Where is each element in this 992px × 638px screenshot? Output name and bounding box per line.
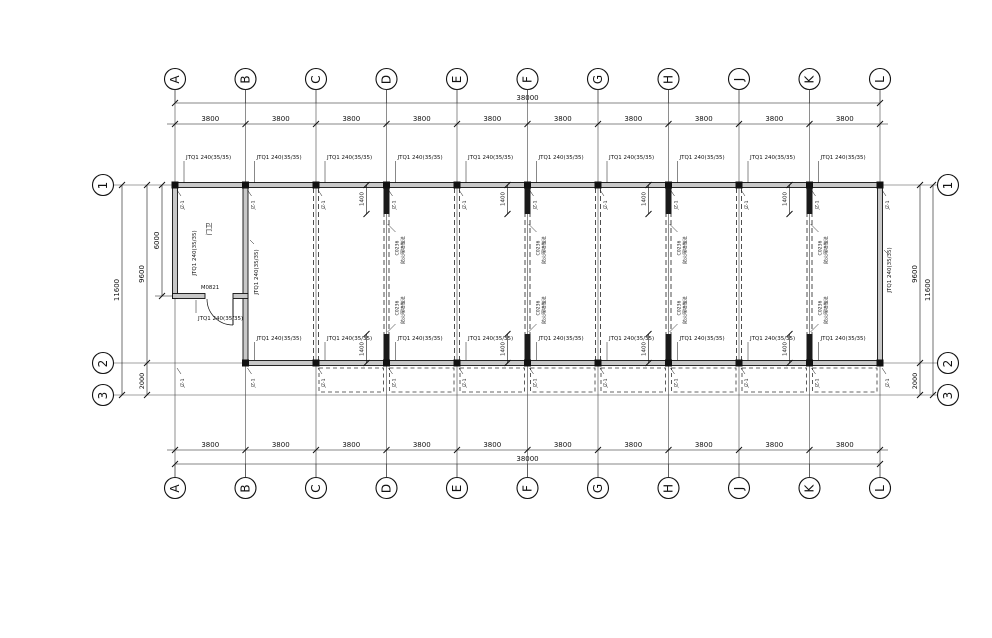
- wall-type-label-bottom: JTQ1 240(35/35): [397, 336, 443, 342]
- column-tag: JZ-1: [674, 200, 680, 210]
- column-tag: JZ-1: [744, 378, 750, 388]
- dim-stub-top: 1400: [360, 192, 366, 206]
- dim-bay-top: 3800: [695, 115, 713, 123]
- canopy-bay: [601, 368, 666, 392]
- column-marker: [383, 182, 390, 189]
- grid-bubble-bottom-label: K: [803, 483, 817, 492]
- stub-wall-bottom: [525, 334, 531, 360]
- wall-type-label-top: JTQ1 240(35/35): [256, 155, 302, 161]
- floor-plan: 3800038003800380038003800380038003800380…: [0, 0, 992, 638]
- grid-bubble-left-label: 1: [96, 182, 110, 190]
- dim-right-9600: 9600: [911, 265, 919, 283]
- wall-room-bottom-left: [173, 294, 206, 299]
- grid-bubble-left-label: 3: [96, 392, 110, 400]
- partition-note: 防火隔墙做法: [823, 296, 830, 324]
- wall-left-room: [173, 183, 178, 299]
- dim-bay-top: 3800: [201, 115, 219, 123]
- column-tag: JZ-1: [180, 378, 186, 388]
- column-tag: JZ-1: [251, 378, 257, 388]
- stub-wall-top: [666, 188, 672, 214]
- column-tag: JZ-1: [815, 378, 821, 388]
- dim-bay-bottom: 3800: [413, 441, 431, 449]
- column-marker: [242, 360, 249, 367]
- dim-stub-bottom: 1400: [642, 342, 648, 356]
- grid-bubble-bottom-label: D: [380, 484, 394, 493]
- grid-bubble-top-label: G: [591, 75, 605, 84]
- dim-stub-top: 1400: [642, 192, 648, 206]
- canopy-bay: [742, 368, 807, 392]
- dim-bay-bottom: 3800: [342, 441, 360, 449]
- canopy-bay: [531, 368, 596, 392]
- dim-left-2000: 2000: [138, 373, 146, 390]
- wall-type-label-top: JTQ1 240(35/35): [749, 155, 795, 161]
- dim-bay-top: 3800: [624, 115, 642, 123]
- dim-bay-top: 3800: [554, 115, 572, 123]
- wall-type-label-bottom: JTQ1 240(35/35): [256, 336, 302, 342]
- stub-wall-top: [384, 188, 390, 214]
- partition-note: C0236: [677, 300, 683, 315]
- room: 门卫: [204, 222, 213, 236]
- column-tag: JZ-1: [533, 200, 539, 210]
- partition-note: C0236: [677, 240, 683, 255]
- partition-note: C0236: [536, 240, 542, 255]
- grid-bubble-top-label: D: [380, 75, 394, 84]
- wall-type-label-top: JTQ1 240(35/35): [679, 155, 725, 161]
- partition-note: 防火隔墙做法: [541, 296, 548, 324]
- grid-bubble-top-label: F: [521, 76, 535, 83]
- column-marker: [313, 182, 320, 189]
- column-tag: JZ-1: [321, 200, 327, 210]
- column-tag: JZ-1: [180, 200, 186, 210]
- dim-stub-bottom: 1400: [783, 342, 789, 356]
- wall-type-label-top: JTQ1 240(35/35): [538, 155, 584, 161]
- column-tag: JZ-1: [603, 200, 609, 210]
- stub-wall-bottom: [807, 334, 813, 360]
- partition-note: C0236: [818, 300, 824, 315]
- grid-bubble-bottom-label: H: [662, 484, 676, 493]
- grid-bubble-top-label: L: [873, 76, 887, 83]
- column-marker: [454, 360, 461, 367]
- column-marker: [736, 360, 743, 367]
- partition-note: C0236: [395, 300, 401, 315]
- room-label: 门卫: [204, 222, 213, 236]
- grid-lines: [114, 90, 938, 477]
- grid-bubble-bottom-label: J: [732, 487, 746, 492]
- column-tag: JZ-1: [885, 378, 891, 388]
- dim-bay-top: 3800: [765, 115, 783, 123]
- floor-plan-canvas: 3800038003800380038003800380038003800380…: [0, 0, 992, 638]
- grid-bubble-right-label: 1: [941, 182, 955, 190]
- grid-bubble-top-label: K: [803, 74, 817, 83]
- wall-bottom: [243, 361, 883, 366]
- wall-type-label-bottom: JTQ1 240(35/35): [467, 336, 513, 342]
- column-tag: JZ-1: [251, 200, 257, 210]
- partition-note: 防火隔墙做法: [400, 236, 407, 264]
- wall-room-bottom-right: [233, 294, 248, 299]
- grid-bubble-bottom-label: C: [309, 484, 323, 492]
- wall-type-label-bottom: JTQ1 240(35/35): [749, 336, 795, 342]
- wall-type-label-B: JTQ1 240(35/35): [254, 249, 260, 295]
- column-marker: [524, 182, 531, 189]
- column-marker: [454, 182, 461, 189]
- column-tag: JZ-1: [392, 200, 398, 210]
- wall-right: [878, 183, 883, 366]
- wall-type-label-top: JTQ1 240(35/35): [820, 155, 866, 161]
- column-marker: [736, 182, 743, 189]
- column-tag: JZ-1: [744, 200, 750, 210]
- column-marker: [665, 360, 672, 367]
- grid-bubble-top-label: E: [450, 76, 464, 84]
- canopy-bay: [813, 368, 878, 392]
- partition-note: 防火隔墙做法: [400, 296, 407, 324]
- grid-bubble-left-label: 2: [96, 360, 110, 368]
- partition-note: C0236: [818, 240, 824, 255]
- wall-type-label-room: JTQ1 240(35/35): [197, 316, 243, 322]
- grid-bubble-top-label: H: [662, 75, 676, 84]
- canopy-bay: [319, 368, 384, 392]
- column-tag: JZ-1: [392, 378, 398, 388]
- grid-bubble-bottom-label: A: [168, 484, 182, 493]
- column-tag: JZ-1: [885, 200, 891, 210]
- column-marker: [595, 182, 602, 189]
- grid-bubble-bottom-label: F: [521, 485, 535, 492]
- partition-note: 防火隔墙做法: [682, 296, 689, 324]
- wall-type-label-bottom: JTQ1 240(35/35): [326, 336, 372, 342]
- grid-bubble-bottom-label: E: [450, 485, 464, 493]
- wall-type-label-top: JTQ1 240(35/35): [397, 155, 443, 161]
- wall-type-label-L: JTQ1 240(35/35): [887, 247, 893, 293]
- dim-bay-bottom: 3800: [201, 441, 219, 449]
- wall-type-label-top: JTQ1 240(35/35): [326, 155, 372, 161]
- column-marker: [877, 182, 884, 189]
- column-tag: JZ-1: [674, 378, 680, 388]
- dim-stub-bottom: 1400: [360, 342, 366, 356]
- partition-note: 防火隔墙做法: [541, 236, 548, 264]
- column-marker: [806, 182, 813, 189]
- dim-total-bottom: 38000: [516, 455, 538, 463]
- grid-bubble-top-label: B: [239, 75, 253, 83]
- stub-wall-bottom: [666, 334, 672, 360]
- dim-bay-bottom: 3800: [272, 441, 290, 449]
- column-marker: [172, 182, 179, 189]
- wall-grid-B: [243, 183, 248, 366]
- dimension-lines: 3800038003800380038003800380038003800380…: [113, 94, 936, 467]
- stub-wall-top: [525, 188, 531, 214]
- dim-bay-bottom: 3800: [483, 441, 501, 449]
- grid-bubble-bottom-label: L: [873, 485, 887, 492]
- dim-right-2000: 2000: [911, 373, 919, 390]
- column-tag: JZ-1: [603, 378, 609, 388]
- canopy-bay: [390, 368, 455, 392]
- dim-left-9600: 9600: [138, 265, 146, 283]
- dim-stub-bottom: 1400: [501, 342, 507, 356]
- wall-type-label-top: JTQ1 240(35/35): [467, 155, 513, 161]
- grid-bubble-bottom-label: B: [239, 484, 253, 492]
- column-marker: [313, 360, 320, 367]
- canopy-bay: [460, 368, 525, 392]
- column-tag: JZ-1: [462, 378, 468, 388]
- stub-wall-top: [807, 188, 813, 214]
- column-marker: [665, 182, 672, 189]
- dim-bay-top: 3800: [836, 115, 854, 123]
- grid-bubble-top-label: J: [732, 78, 746, 83]
- partition-note: 防火隔墙做法: [682, 236, 689, 264]
- door-tag: M0821: [201, 285, 219, 291]
- column-marker: [877, 360, 884, 367]
- partition-note: 防火隔墙做法: [823, 236, 830, 264]
- column-tag: JZ-1: [462, 200, 468, 210]
- partition-note: C0236: [395, 240, 401, 255]
- wall-type-label-bottom: JTQ1 240(35/35): [679, 336, 725, 342]
- wall-type-label-top: JTQ1 240(35/35): [185, 155, 231, 161]
- column-marker: [524, 360, 531, 367]
- grid-bubble-right-label: 3: [941, 392, 955, 400]
- partition-note: C0236: [536, 300, 542, 315]
- dim-stub-top: 1400: [501, 192, 507, 206]
- dim-bay-bottom: 3800: [765, 441, 783, 449]
- canopy-bay: [672, 368, 737, 392]
- wall-type-label-bottom: JTQ1 240(35/35): [538, 336, 584, 342]
- grid-bubble-top-label: C: [309, 75, 323, 83]
- wall-type-label-bottom: JTQ1 240(35/35): [608, 336, 654, 342]
- dim-bay-bottom: 3800: [836, 441, 854, 449]
- column-marker: [806, 360, 813, 367]
- dim-right-overall: 11600: [924, 279, 932, 301]
- stub-wall-bottom: [384, 334, 390, 360]
- wall-type-label-top: JTQ1 240(35/35): [608, 155, 654, 161]
- dim-room-depth: 6000: [153, 232, 161, 250]
- column-marker: [242, 182, 249, 189]
- wall-type-label-A: JTQ1 240(35/35): [192, 230, 198, 276]
- column-tag: JZ-1: [321, 378, 327, 388]
- dim-bay-top: 3800: [342, 115, 360, 123]
- dim-bay-bottom: 3800: [554, 441, 572, 449]
- dim-stub-top: 1400: [783, 192, 789, 206]
- column-tag: JZ-1: [533, 378, 539, 388]
- column-marker: [595, 360, 602, 367]
- dim-bay-bottom: 3800: [695, 441, 713, 449]
- dim-bay-top: 3800: [413, 115, 431, 123]
- column-marker: [383, 360, 390, 367]
- dim-bay-top: 3800: [483, 115, 501, 123]
- axis-bubbles: AABBCCDDEEFFGGHHJJKKLL112233: [93, 69, 959, 499]
- grid-bubble-bottom-label: G: [591, 484, 605, 493]
- dim-bay-bottom: 3800: [624, 441, 642, 449]
- grid-bubble-top-label: A: [168, 75, 182, 84]
- column-tags: JZ-1JZ-1JZ-1JZ-1JZ-1JZ-1JZ-1JZ-1JZ-1JZ-1…: [177, 190, 891, 389]
- grid-bubble-right-label: 2: [941, 360, 955, 368]
- wall-type-label-bottom: JTQ1 240(35/35): [820, 336, 866, 342]
- dim-bay-top: 3800: [272, 115, 290, 123]
- column-tag: JZ-1: [815, 200, 821, 210]
- dim-left-overall: 11600: [113, 279, 121, 301]
